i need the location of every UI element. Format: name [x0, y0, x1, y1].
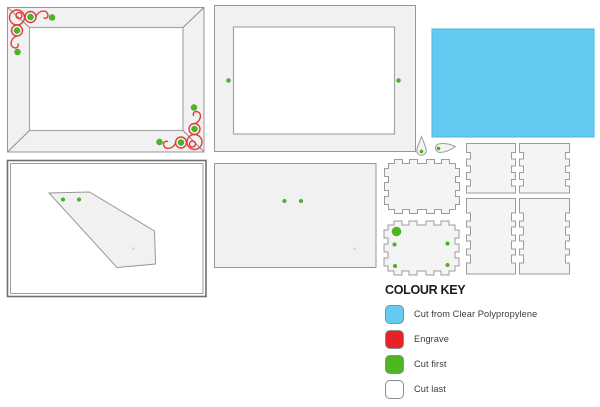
part-hanger-long — [435, 143, 455, 152]
swatch-cut-last — [385, 380, 404, 399]
part-side-plate-4 — [520, 199, 570, 275]
swatch-cut-first — [385, 355, 404, 374]
part-side-plate-3 — [467, 199, 516, 275]
part-side-plate-1 — [467, 144, 516, 194]
part-polypropylene-sheet — [432, 29, 594, 137]
colour-key-label: Engrave — [414, 334, 449, 344]
part-base-panel — [215, 164, 377, 268]
part-box-panel-1 — [385, 160, 460, 214]
colour-key-item: Cut from Clear Polypropylene — [385, 304, 595, 325]
part-frame-front — [8, 8, 205, 153]
part-hanger-small — [417, 137, 427, 156]
colour-key-label: Cut first — [414, 359, 447, 369]
part-box-panel-2 — [384, 221, 459, 275]
colour-key-item: Cut last — [385, 379, 595, 400]
swatch-engrave — [385, 330, 404, 349]
colour-key: COLOUR KEY Cut from Clear Polypropylene … — [385, 283, 595, 400]
swatch-polypropylene — [385, 305, 404, 324]
colour-key-item: Cut first — [385, 354, 595, 375]
colour-key-item: Engrave — [385, 329, 595, 350]
colour-key-title: COLOUR KEY — [385, 283, 595, 297]
cutting-layout-sheet: COLOUR KEY Cut from Clear Polypropylene … — [0, 0, 600, 407]
part-stand-sheet — [8, 161, 207, 297]
colour-key-rows: Cut from Clear Polypropylene Engrave Cut… — [385, 304, 595, 400]
part-side-plate-2 — [520, 144, 570, 194]
colour-key-label: Cut last — [414, 384, 446, 394]
colour-key-label: Cut from Clear Polypropylene — [414, 309, 537, 319]
part-frame-back — [215, 6, 416, 152]
